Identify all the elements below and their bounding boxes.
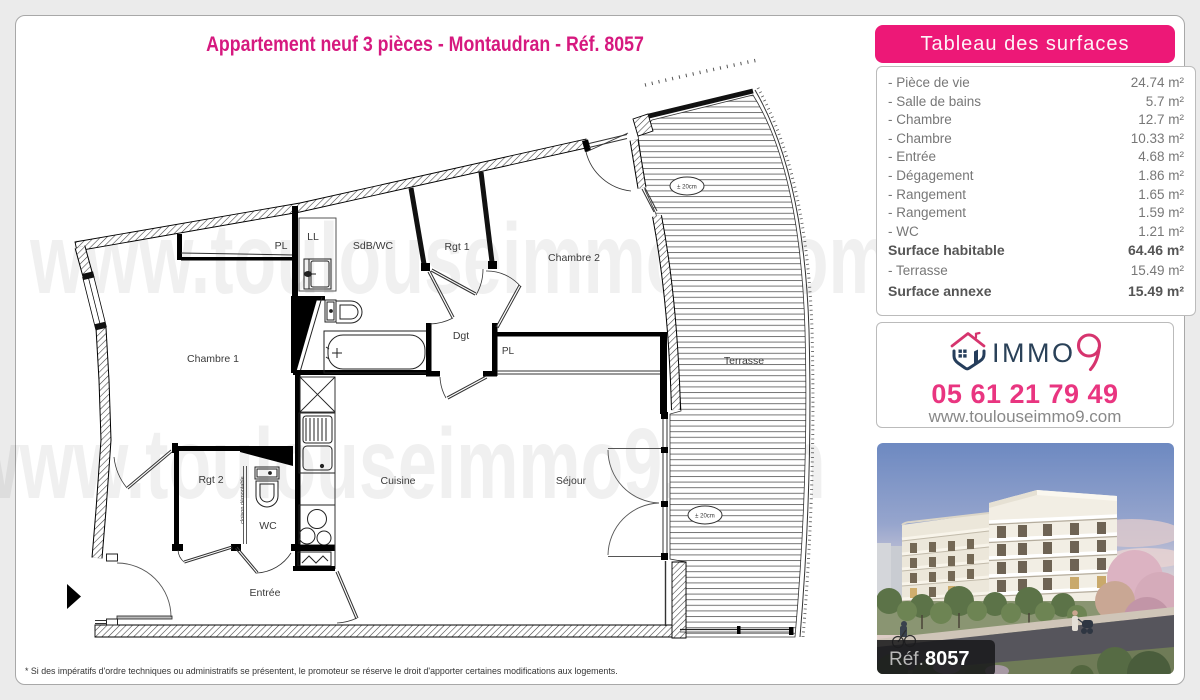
svg-text:± 20cm: ± 20cm <box>677 185 697 191</box>
svg-text:Réf.: Réf. <box>889 649 924 670</box>
svg-text:cloison démontable: cloison démontable <box>240 476 246 523</box>
svg-text:Rgt 2: Rgt 2 <box>198 474 223 486</box>
svg-text:± 20cm: ± 20cm <box>695 514 715 520</box>
svg-text:PL: PL <box>275 240 288 252</box>
svg-text:Chambre 1: Chambre 1 <box>187 353 239 365</box>
svg-text:8057: 8057 <box>925 648 970 670</box>
svg-text:Cuisine: Cuisine <box>380 475 415 487</box>
svg-text:IMMO: IMMO <box>992 338 1076 368</box>
svg-text:Entrée: Entrée <box>250 587 281 599</box>
svg-text:PL: PL <box>502 346 515 357</box>
svg-text:Terrasse: Terrasse <box>724 355 764 367</box>
svg-text:SdB/WC: SdB/WC <box>353 240 394 252</box>
svg-text:Chambre 2: Chambre 2 <box>548 252 600 264</box>
svg-text:Rgt 1: Rgt 1 <box>444 241 469 253</box>
svg-text:Dgt: Dgt <box>453 330 469 342</box>
svg-text:Séjour: Séjour <box>556 475 587 487</box>
svg-text:WC: WC <box>259 520 277 532</box>
svg-text:LL: LL <box>307 231 319 243</box>
